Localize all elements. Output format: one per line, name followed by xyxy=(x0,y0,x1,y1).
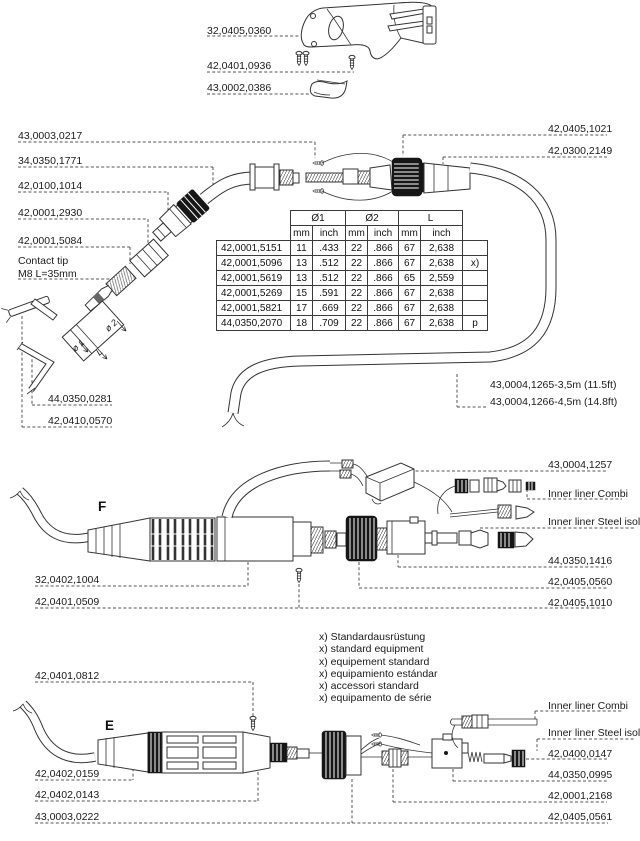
part-label: 42,0100,1014 xyxy=(18,181,82,192)
part-label: 42,0401,0509 xyxy=(35,597,99,608)
part-label: 32,0402,1004 xyxy=(35,575,99,586)
part-label: 42,0400,0147 xyxy=(548,749,612,760)
col-group-d1: Ø1 xyxy=(291,211,346,226)
col-group-l: L xyxy=(399,211,463,226)
part-label: 44,0350,0281 xyxy=(48,394,112,405)
inner-liner-steel-label: Inner liner Steel isol. xyxy=(548,517,640,528)
part-label: 42,0405,1010 xyxy=(548,598,612,609)
table-row: 42,0001,5096 13 .512 22 .866 67 2,638 x) xyxy=(217,256,488,271)
liner-parts-f-drawing xyxy=(414,478,535,519)
part-label: 44,0350,1416 xyxy=(548,556,612,567)
inner-liner-combi-label: Inner liner Combi xyxy=(548,489,628,500)
part-label: 44,0350,0995 xyxy=(548,770,612,781)
hose-length-label: 43,0004,1265-3,5m (11.5ft) xyxy=(490,380,616,391)
part-label: 43,0003,0222 xyxy=(35,812,99,823)
part-label: 42,0401,0936 xyxy=(207,61,271,72)
part-label: 43,0004,1257 xyxy=(548,460,612,471)
equipment-notes: x) Standardausrüstung x) standard equipm… xyxy=(319,631,438,705)
inner-liner-combi-label: Inner liner Combi xyxy=(548,701,628,712)
table-row: 42,0001,5619 13 .512 22 .866 65 2,559 xyxy=(217,271,488,286)
hose-length-label: 43,0004,1266-4,5m (14.8ft) xyxy=(490,397,617,408)
part-label: 42,0405,0560 xyxy=(548,577,612,588)
section-e-marker: E xyxy=(105,718,114,733)
part-label: 32,0405,0360 xyxy=(207,26,271,37)
handle-drawing xyxy=(296,2,436,98)
table-row: 44,0350,2070 18 .709 22 .866 67 2,638 p xyxy=(217,316,488,331)
section-f-marker: F xyxy=(98,499,106,514)
torch-body-f-drawing xyxy=(10,460,535,583)
note-line: x) accessori standard xyxy=(319,680,438,692)
table-row: 42,0001,5151 11 .433 22 .866 67 2,638 xyxy=(217,241,488,256)
table-unit-row: mm inch mm inch mm inch xyxy=(217,226,488,241)
part-label: 43,0002,0386 xyxy=(207,83,271,94)
note-line: x) Standardausrüstung xyxy=(319,631,438,643)
part-label: 42,0401,0812 xyxy=(35,671,99,682)
note-line: x) standard equipment xyxy=(319,643,438,655)
part-label: 42,0402,0143 xyxy=(35,790,99,801)
contact-tip-label: Contact tip xyxy=(18,256,68,267)
col-group-d2: Ø2 xyxy=(346,211,399,226)
part-label: 42,0300,2149 xyxy=(548,146,612,157)
part-label: 42,0001,2168 xyxy=(548,791,612,802)
note-line: x) equipement standard xyxy=(319,656,438,668)
table-row: 42,0001,5821 17 .669 22 .866 67 2,638 xyxy=(217,301,488,316)
table-row: 42,0001,5269 15 .591 22 .866 67 2,638 xyxy=(217,286,488,301)
contact-tip-size-label: M8 L=35mm xyxy=(18,269,77,280)
note-line: x) equipamiento estándar xyxy=(319,668,438,680)
part-label: 42,0405,1021 xyxy=(548,124,612,135)
part-label: 42,0410,0570 xyxy=(48,416,112,427)
table-header-row: Ø1 Ø2 L xyxy=(217,211,488,226)
part-label: 42,0405,0561 xyxy=(548,812,612,823)
leader-lines xyxy=(18,36,635,823)
dimensions-table: Ø1 Ø2 L mm inch mm inch mm inch 42,0001,… xyxy=(216,210,488,331)
part-label: 42,0001,2930 xyxy=(18,208,82,219)
part-label: 42,0402,0159 xyxy=(35,769,99,780)
wrench-drawing xyxy=(1,292,57,323)
part-label: 34,0350,1771 xyxy=(18,156,82,167)
part-label: 43,0003,0217 xyxy=(18,131,82,142)
inner-liner-steel-label: Inner liner Steel isol. xyxy=(548,728,640,739)
note-line: x) equipamento de série xyxy=(319,692,438,704)
parts-diagram-page: 32,0405,0360 42,0401,0936 43,0002,0386 4… xyxy=(0,0,640,841)
part-label: 42,0001,5084 xyxy=(18,236,82,247)
trigger-module-drawing xyxy=(366,463,414,504)
